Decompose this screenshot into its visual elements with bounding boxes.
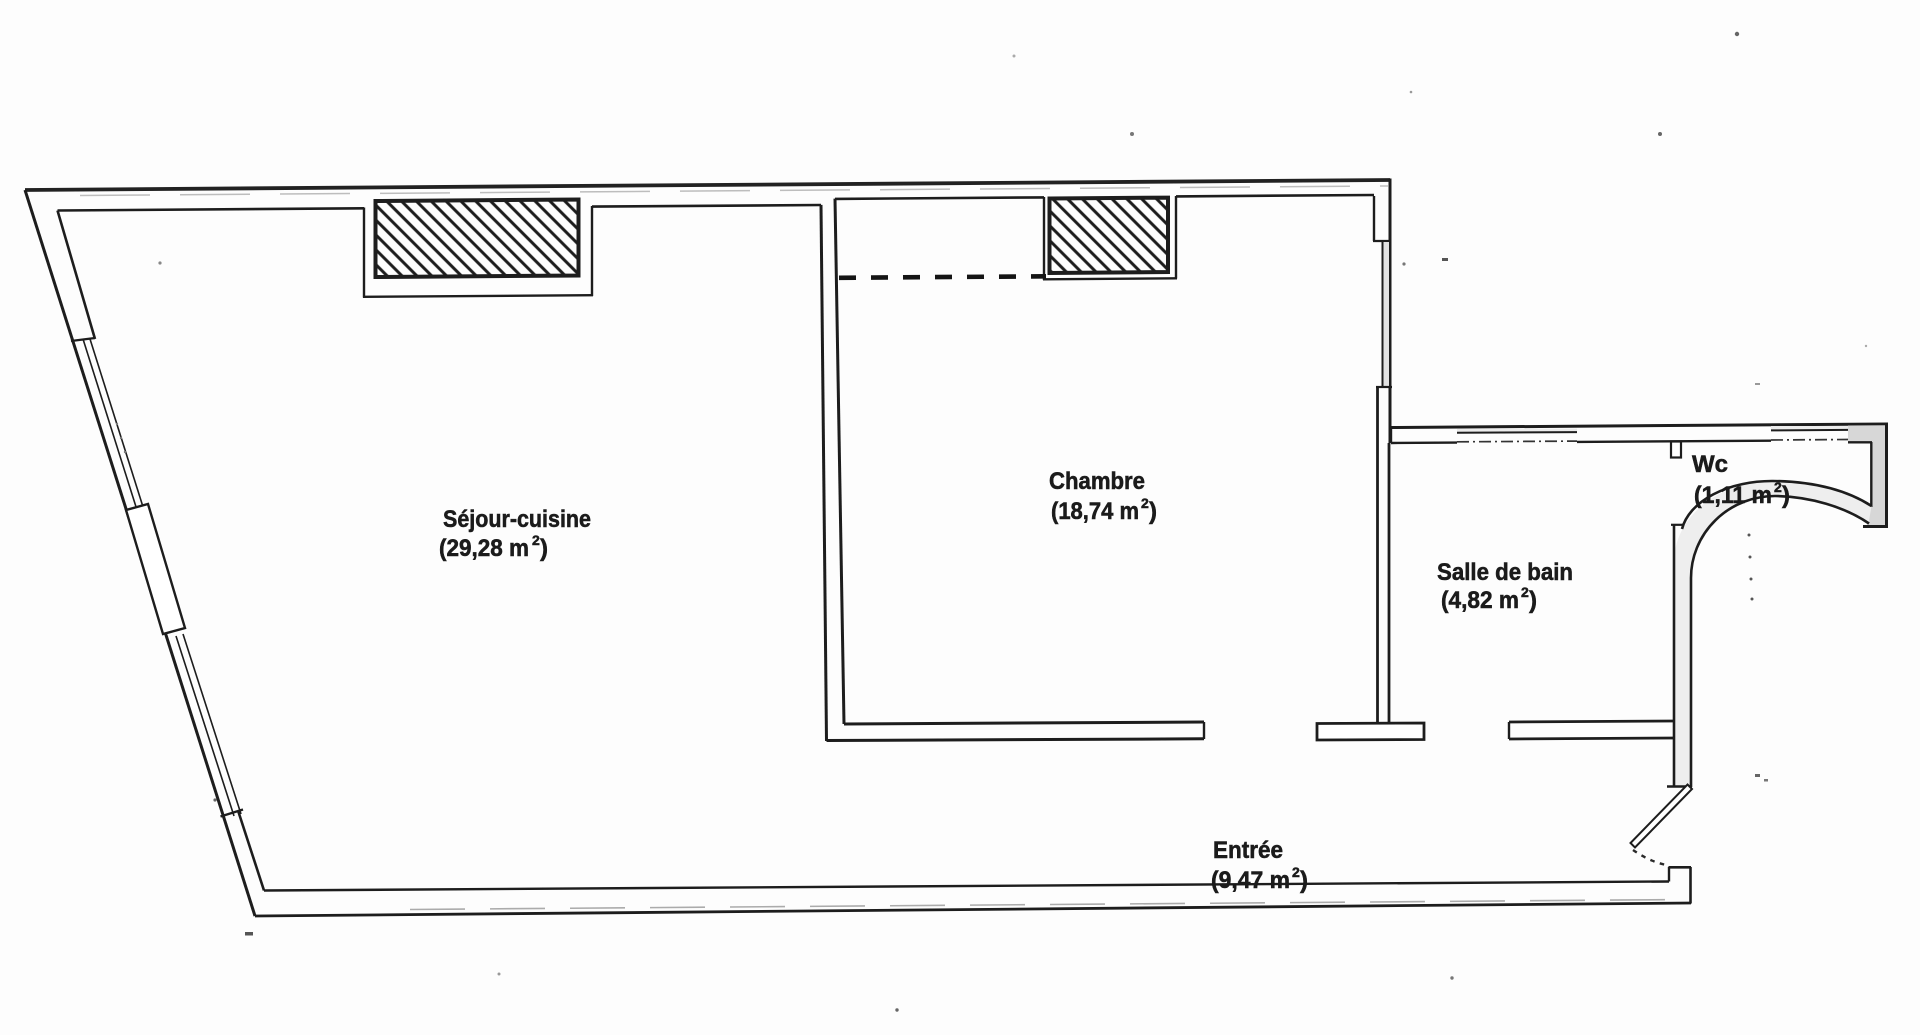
svg-text:(18,74 m: (18,74 m	[1051, 498, 1139, 525]
svg-text:): )	[1300, 867, 1308, 894]
svg-text:): )	[1782, 482, 1790, 509]
svg-text:(1,11 m: (1,11 m	[1694, 482, 1772, 509]
svg-text:Chambre: Chambre	[1049, 468, 1145, 495]
svg-text:Wc: Wc	[1692, 451, 1728, 478]
svg-text:): )	[1529, 587, 1537, 614]
svg-text:Salle de bain: Salle de bain	[1437, 559, 1573, 586]
svg-text:2: 2	[1521, 584, 1529, 600]
svg-text:2: 2	[532, 532, 540, 548]
svg-text:(29,28 m: (29,28 m	[439, 535, 529, 562]
svg-text:2: 2	[1292, 864, 1300, 880]
svg-text:2: 2	[1141, 495, 1149, 511]
svg-text:Entrée: Entrée	[1213, 837, 1283, 864]
svg-text:(9,47 m: (9,47 m	[1211, 867, 1290, 894]
svg-text:Séjour-cuisine: Séjour-cuisine	[443, 506, 591, 533]
svg-text:): )	[1149, 498, 1157, 525]
svg-text:(4,82 m: (4,82 m	[1441, 587, 1519, 614]
svg-text:): )	[540, 535, 548, 562]
svg-text:2: 2	[1774, 479, 1782, 495]
